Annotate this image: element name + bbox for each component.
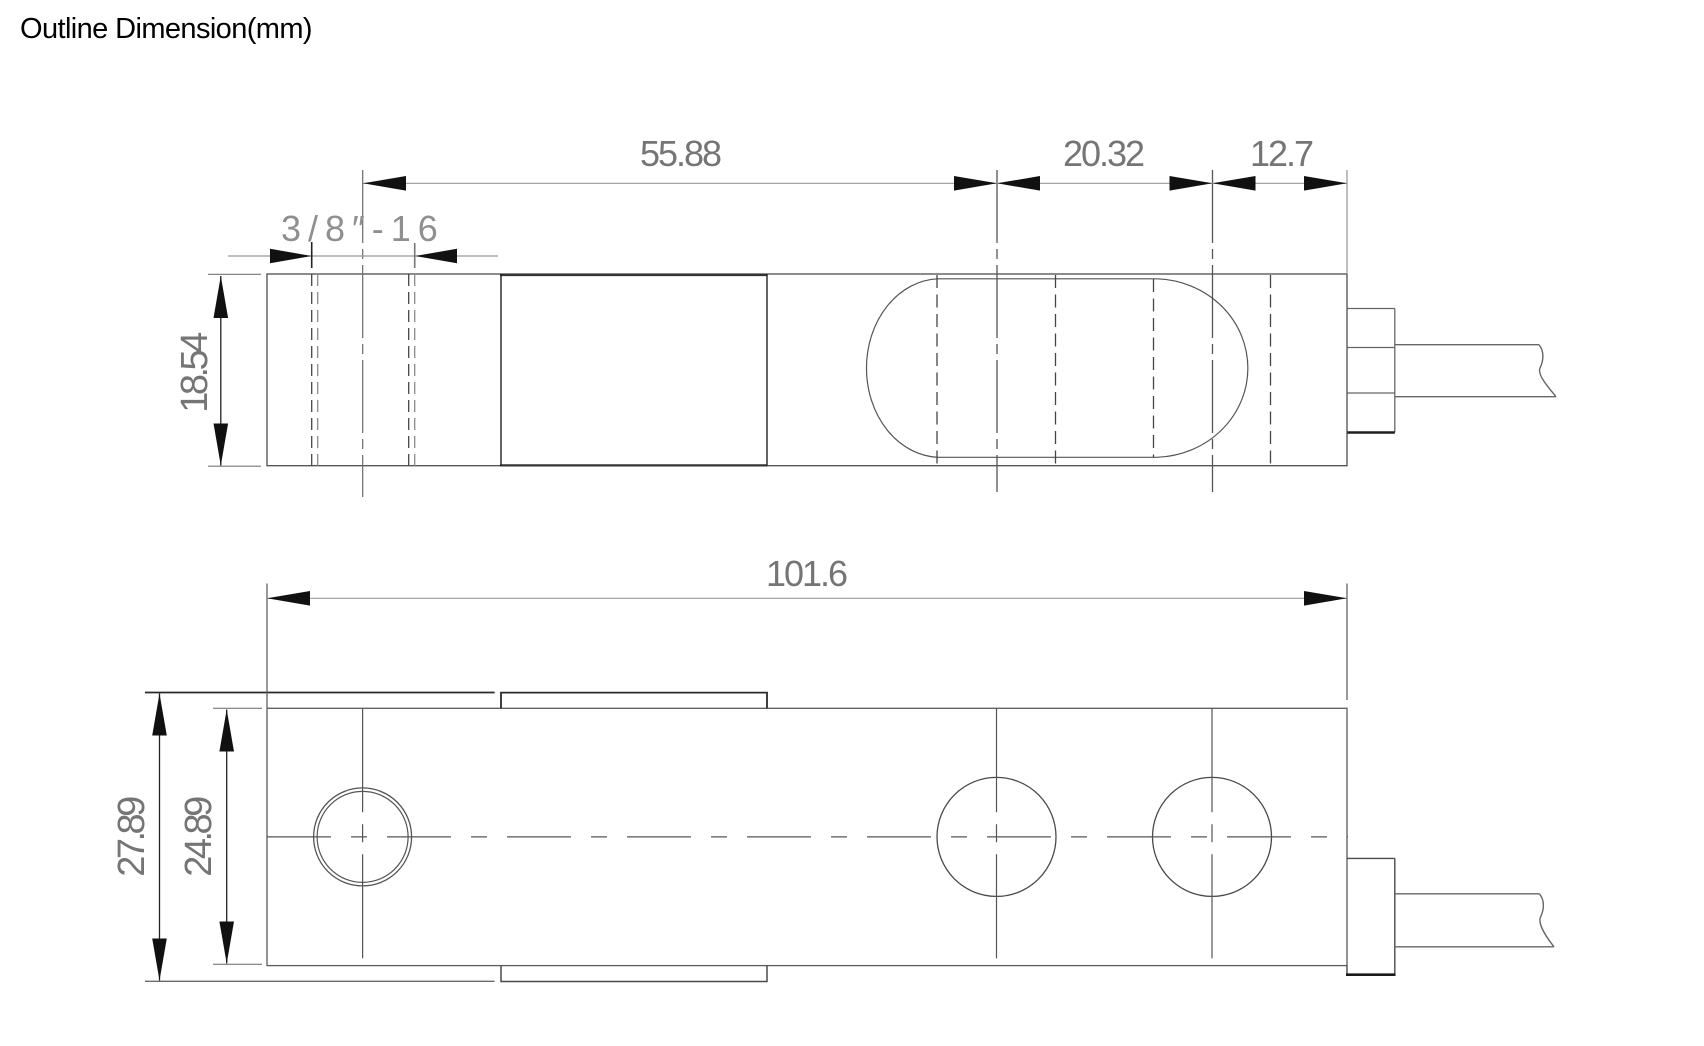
svg-text:3/8″-16: 3/8″-16 bbox=[281, 208, 445, 249]
svg-text:101.6: 101.6 bbox=[766, 553, 847, 594]
svg-text:20.32: 20.32 bbox=[1063, 133, 1144, 174]
svg-text:18.54: 18.54 bbox=[174, 332, 216, 413]
svg-text:27.89: 27.89 bbox=[111, 797, 153, 877]
svg-text:12.7: 12.7 bbox=[1250, 133, 1313, 174]
svg-text:55.88: 55.88 bbox=[640, 133, 721, 174]
svg-text:Outline Dimension(mm): Outline Dimension(mm) bbox=[20, 13, 312, 45]
svg-text:24.89: 24.89 bbox=[178, 797, 220, 877]
